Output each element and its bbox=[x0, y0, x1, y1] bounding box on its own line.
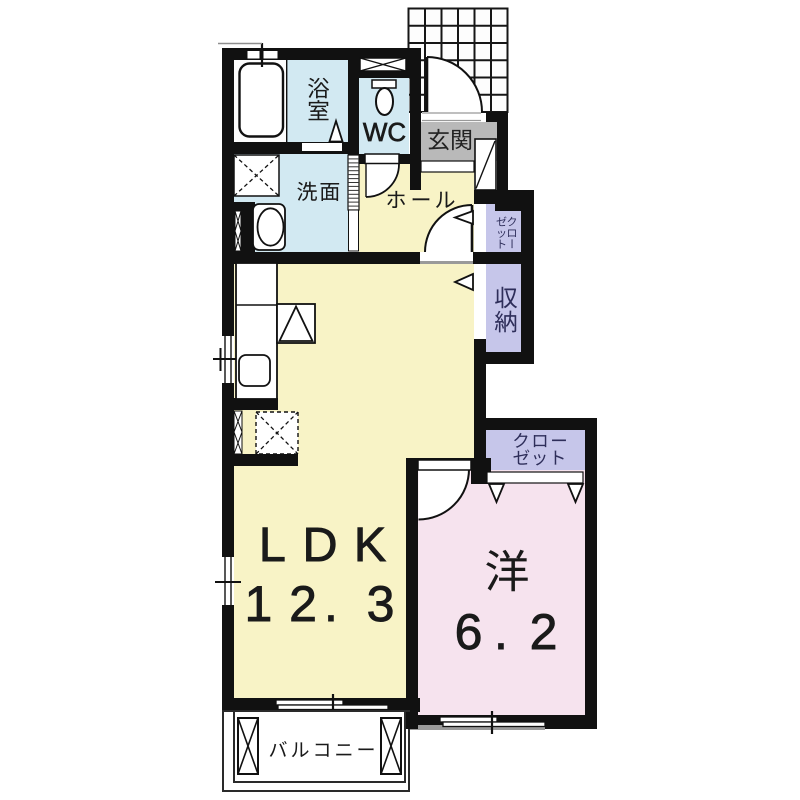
svg-text:3: 3 bbox=[367, 576, 395, 632]
svg-text:1: 1 bbox=[244, 576, 272, 632]
svg-text:WC: WC bbox=[363, 117, 406, 147]
svg-text:D: D bbox=[302, 518, 337, 572]
svg-text:2: 2 bbox=[289, 576, 317, 632]
svg-text:2: 2 bbox=[530, 604, 558, 660]
svg-text:6: 6 bbox=[455, 604, 483, 660]
svg-text:K: K bbox=[354, 518, 386, 572]
svg-text:.: . bbox=[324, 576, 338, 632]
svg-text:.: . bbox=[494, 604, 508, 660]
svg-text:L: L bbox=[259, 518, 286, 572]
